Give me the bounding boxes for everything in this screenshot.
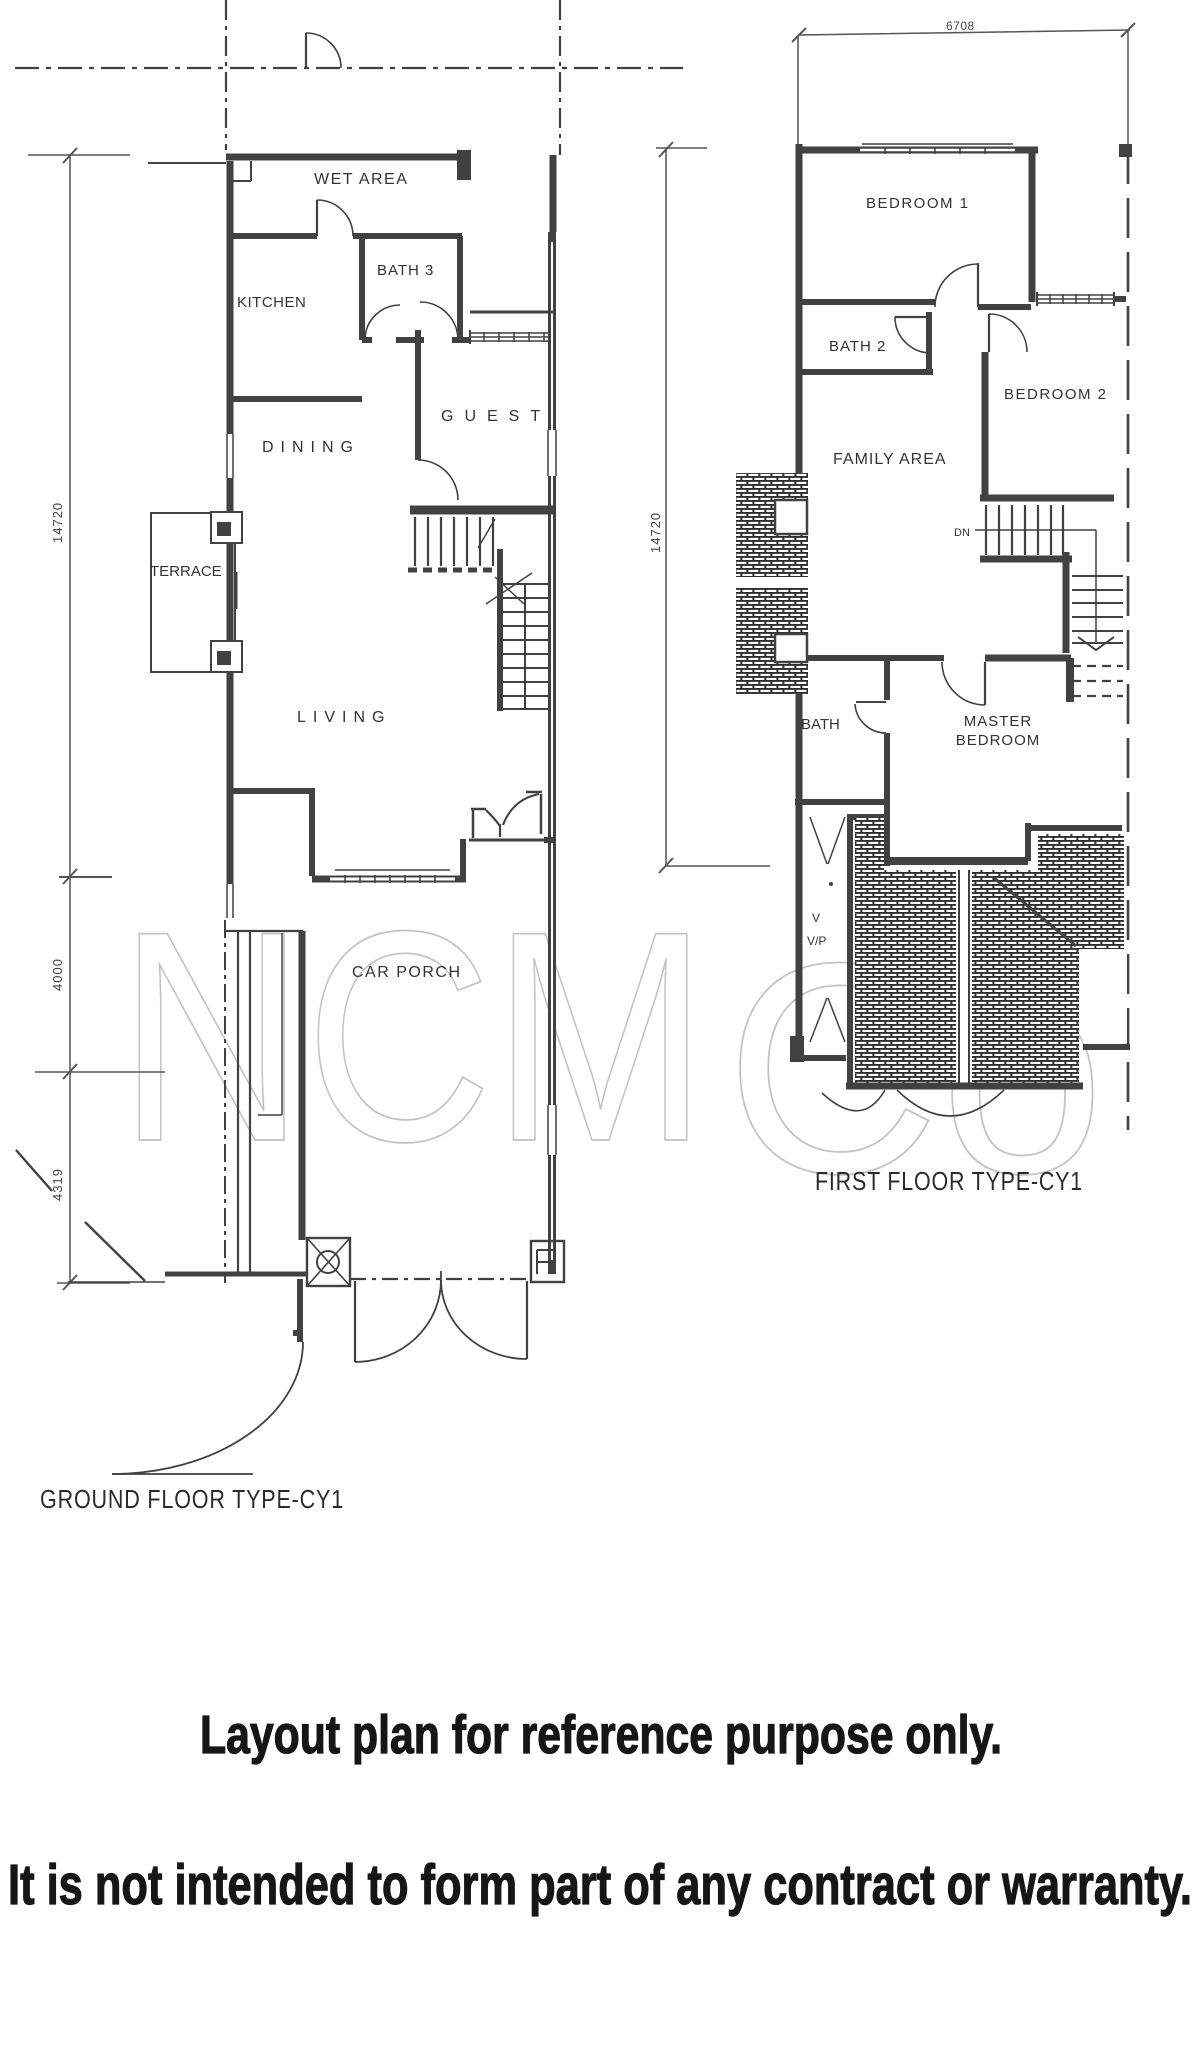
svg-text:TERRACE: TERRACE [150, 563, 222, 580]
svg-text:GROUND FLOOR TYPE-CY1: GROUND FLOOR TYPE-CY1 [40, 1484, 344, 1514]
svg-text:KITCHEN: KITCHEN [237, 294, 306, 311]
svg-text:4319: 4319 [50, 1168, 65, 1201]
svg-text:It is not intended to form par: It is not intended to form part of any c… [8, 1853, 1192, 1917]
svg-text:MASTER: MASTER [964, 713, 1033, 730]
svg-text:GUEST: GUEST [441, 408, 551, 425]
svg-text:BEDROOM 1: BEDROOM 1 [866, 195, 970, 212]
svg-text:V: V [812, 911, 820, 925]
svg-text:FIRST FLOOR TYPE-CY1: FIRST FLOOR TYPE-CY1 [815, 1166, 1083, 1196]
svg-text:14720: 14720 [50, 502, 65, 543]
svg-text:NCM: NCM [118, 868, 708, 1204]
svg-text:BATH 2: BATH 2 [829, 338, 886, 355]
svg-text:4000: 4000 [50, 958, 65, 991]
svg-text:DINING: DINING [262, 439, 360, 456]
svg-text:BATH: BATH [801, 716, 840, 733]
svg-text:14720: 14720 [648, 512, 663, 553]
svg-text:DN: DN [954, 527, 970, 539]
svg-text:Layout plan for reference purp: Layout plan for reference purpose only. [200, 1705, 1002, 1765]
svg-text:CAR PORCH: CAR PORCH [352, 964, 462, 981]
svg-text:BEDROOM 2: BEDROOM 2 [1004, 386, 1108, 403]
svg-text:WET AREA: WET AREA [314, 171, 408, 188]
svg-text:FAMILY AREA: FAMILY AREA [833, 451, 947, 468]
svg-text:BEDROOM: BEDROOM [956, 732, 1041, 749]
svg-text:LIVING: LIVING [297, 709, 391, 726]
svg-text:6708: 6708 [946, 19, 975, 33]
svg-text:BATH 3: BATH 3 [377, 262, 434, 279]
svg-text:V/P: V/P [807, 934, 826, 948]
